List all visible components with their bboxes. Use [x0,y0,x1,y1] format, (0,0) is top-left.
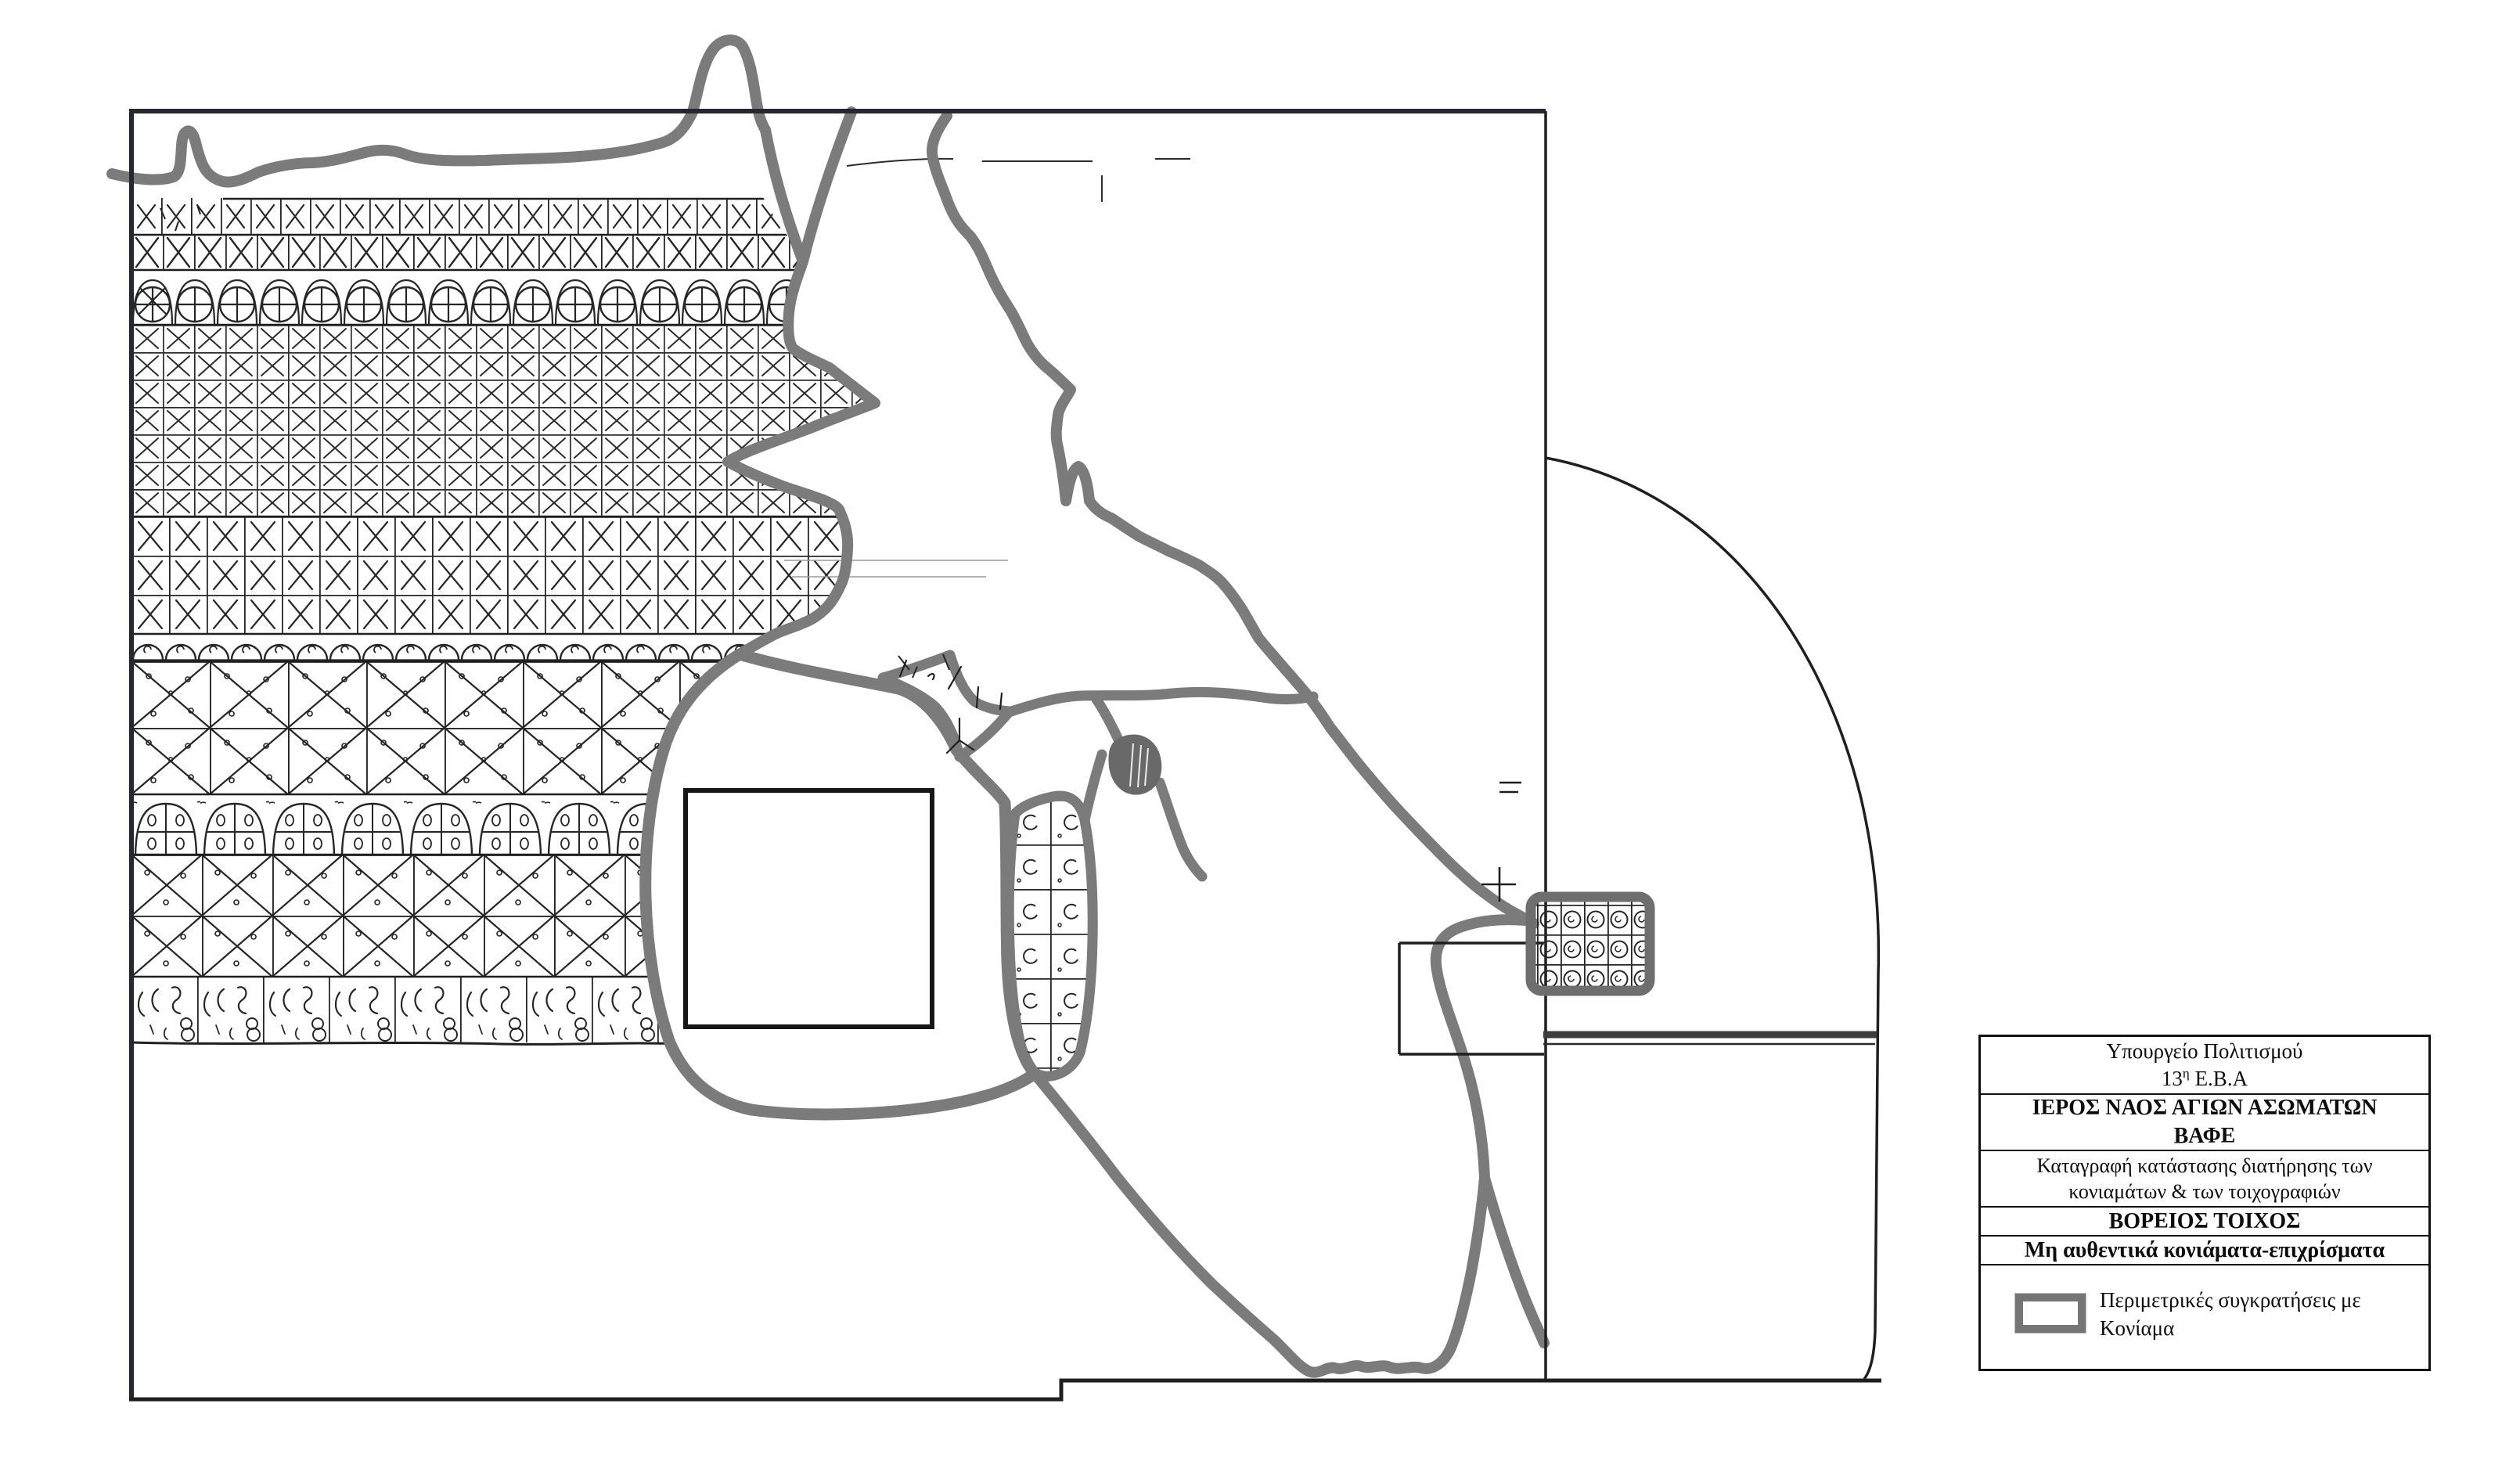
retention-outline-hook [1485,1178,1544,1343]
agency-line2: 13η Ε.Β.Α [1981,1065,2428,1093]
agency-row: Υπουργείο Πολιτισμού 13η Ε.Β.Α [1981,1037,2428,1095]
monument-row: ΙΕΡΟΣ ΝΑΟΣ ΑΓΙΩΝ ΑΣΩΜΑΤΩΝ ΒΑΦΕ [1981,1095,2428,1151]
conservation-drawing-sheet: Υπουργείο Πολιτισμού 13η Ε.Β.Α ΙΕΡΟΣ ΝΑΟ… [0,0,2520,1458]
band-x-row-2 [131,235,898,270]
window-opening [686,790,932,1027]
guide-lines [847,159,1190,202]
legend-label: Περιμετρικές συγκρατήσεις με Κονίαμα [2100,1286,2361,1343]
legend-row: Περιμετρικές συγκρατήσεις με Κονίαμα [1981,1265,2428,1368]
survey-line1: Καταγραφή κατάστασης διατήρησης των [1981,1153,2428,1179]
legend-label-line1: Περιμετρικές συγκρατήσεις με [2100,1286,2361,1314]
ragged-bottom-rule [131,1042,681,1044]
curl-pattern-strip [1009,796,1093,1076]
mortar-patch [1531,897,1650,991]
perimeter-mortar-retention-swatch [2015,1294,2086,1333]
title-block: Υπουργείο Πολιτισμού 13η Ε.Β.Α ΙΕΡΟΣ ΝΑΟ… [1978,1035,2431,1371]
equals-mark [1499,783,1521,792]
retention-outline-loop [1035,920,1526,1372]
layer-title-row: Μη αυθεντικά κονιάματα-επιχρίσματα [1981,1237,2428,1265]
legend-label-line2: Κονίαμα [2100,1314,2361,1342]
agency-line1: Υπουργείο Πολιτισμού [1981,1038,2428,1065]
survey-row: Καταγραφή κατάστασης διατήρησης των κονι… [1981,1151,2428,1208]
wall-bottom-border [129,1381,1881,1399]
band-scallops [131,634,898,661]
monument-line2: ΒΑΦΕ [1981,1122,2428,1150]
retention-outline-link [1011,692,1313,711]
side-opening [1399,943,1544,1054]
layer-title: Μη αυθεντικά κονιάματα-επιχρίσματα [1981,1237,2428,1265]
wall-title: ΒΟΡΕΙΟΣ ΤΟΙΧΟΣ [1981,1208,2428,1236]
monument-line1: ΙΕΡΟΣ ΝΑΟΣ ΑΓΙΩΝ ΑΣΩΜΑΤΩΝ [1981,1094,2428,1122]
survey-line2: κονιαμάτων & των τοιχογραφιών [1981,1179,2428,1204]
band-x-grid [131,517,898,634]
wall-title-row: ΒΟΡΕΙΟΣ ΤΟΙΧΟΣ [1981,1208,2428,1237]
dark-loss-patch [1108,734,1161,794]
strip-connector [1085,754,1102,820]
